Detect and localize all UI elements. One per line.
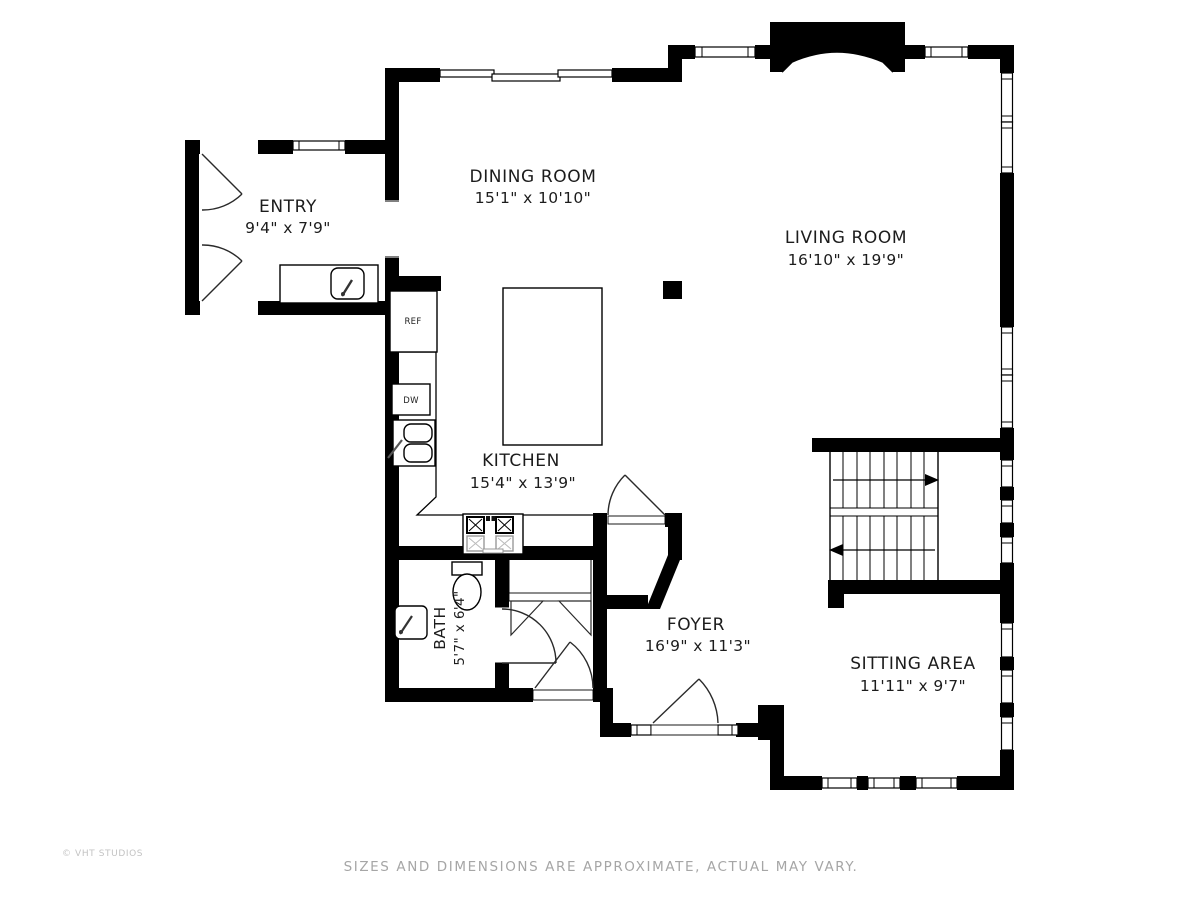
window <box>1002 717 1013 750</box>
window <box>1002 375 1013 428</box>
front-door <box>653 679 718 723</box>
window <box>1002 327 1013 375</box>
dishwasher: DW <box>392 384 430 415</box>
window <box>1002 623 1013 657</box>
floor-plan-page: REF DW <box>0 0 1200 900</box>
kitchen-sink <box>388 420 435 466</box>
kitchen-fixtures: REF DW <box>388 288 602 554</box>
entry-fixtures <box>280 265 378 303</box>
sidelight-window <box>631 725 651 735</box>
window <box>822 778 857 788</box>
window <box>1002 500 1013 523</box>
bath-door <box>502 609 556 663</box>
window <box>916 778 957 788</box>
window <box>293 141 345 150</box>
room-dims-entry: 9'4" x 7'9" <box>245 219 331 237</box>
stair-down-arrow <box>829 544 935 556</box>
room-dims-living: 16'10" x 19'9" <box>788 251 904 269</box>
window <box>695 47 755 57</box>
stove-knob <box>486 516 490 521</box>
room-dims-kitchen: 15'4" x 13'9" <box>470 474 576 492</box>
entry-sink <box>331 268 364 299</box>
room-label-entry: ENTRY <box>259 197 317 217</box>
refrigerator: REF <box>390 291 437 352</box>
window <box>1002 670 1013 703</box>
stove-handle <box>483 549 503 553</box>
structural-column <box>663 281 682 299</box>
staircase <box>829 452 939 580</box>
fireplace <box>770 22 905 72</box>
room-label-sitting: SITTING AREA <box>850 654 976 674</box>
room-dims-bath: 5'7" x 6'4" <box>452 590 468 665</box>
window <box>1002 537 1013 563</box>
room-label-kitchen: KITCHEN <box>482 451 560 471</box>
disclaimer-text: SIZES AND DIMENSIONS ARE APPROXIMATE, AC… <box>344 859 859 875</box>
window <box>1002 122 1013 173</box>
stove-knob <box>492 516 496 521</box>
bath-sink <box>395 606 427 639</box>
room-dims-foyer: 16'9" x 11'3" <box>645 637 751 655</box>
room-label-living: LIVING ROOM <box>785 228 907 248</box>
pantry-door <box>608 475 665 515</box>
room-dims-sitting: 11'11" x 9'7" <box>860 677 966 695</box>
kitchen-island <box>503 288 602 445</box>
entry-door-bottom <box>202 245 242 301</box>
entry-door-top <box>202 154 242 210</box>
room-dims-dining: 15'1" x 10'10" <box>475 189 591 207</box>
stair-up-arrow <box>833 474 939 486</box>
hall-foyer-door <box>535 642 593 688</box>
stove <box>463 514 523 554</box>
closet-double-doors <box>511 601 591 635</box>
window <box>925 47 968 57</box>
credit-text: © VHT STUDIOS <box>62 849 143 859</box>
window <box>1002 460 1013 487</box>
room-label-dining: DINING ROOM <box>470 167 597 187</box>
room-label-foyer: FOYER <box>667 615 725 635</box>
room-label-bath: BATH <box>431 606 449 650</box>
room-labels: ENTRY 9'4" x 7'9" DINING ROOM 15'1" x 10… <box>245 167 976 695</box>
floor-plan-svg: REF DW <box>0 0 1200 900</box>
window <box>1002 73 1013 122</box>
window <box>868 778 900 788</box>
sidelight-window <box>718 725 738 735</box>
refrigerator-label: REF <box>404 317 421 327</box>
dishwasher-label: DW <box>403 396 419 406</box>
bay-window <box>440 70 612 81</box>
